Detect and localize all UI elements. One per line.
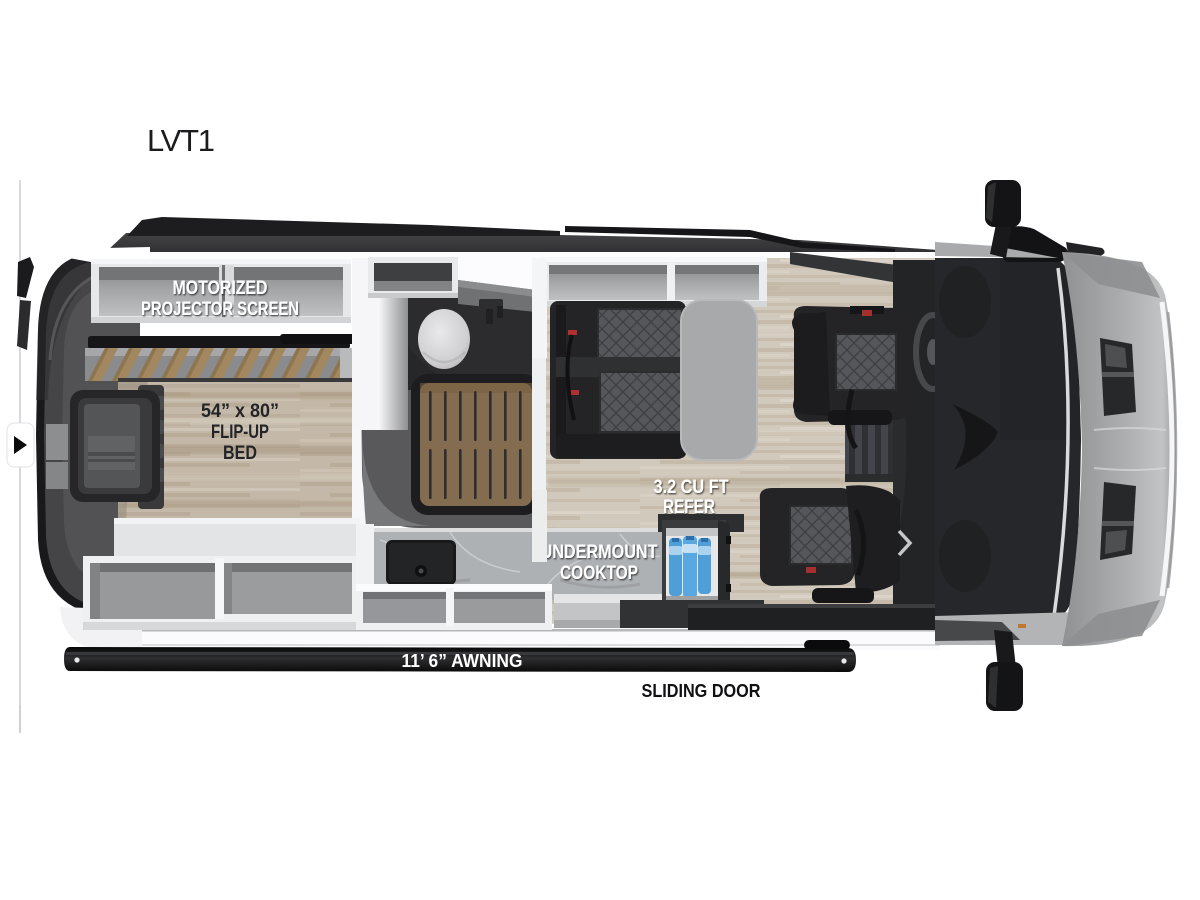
svg-text:LVT1: LVT1: [147, 123, 215, 158]
svg-text:3.2 CU FT: 3.2 CU FT: [654, 477, 729, 498]
svg-text:FLIP-UP: FLIP-UP: [211, 422, 269, 443]
svg-text:PROJECTOR SCREEN: PROJECTOR SCREEN: [141, 299, 299, 320]
svg-text:UNDERMOUNT: UNDERMOUNT: [541, 542, 658, 563]
svg-text:BED: BED: [223, 443, 257, 464]
svg-text:11’ 6” AWNING: 11’ 6” AWNING: [402, 651, 523, 671]
svg-text:MOTORIZED: MOTORIZED: [173, 278, 268, 299]
svg-text:SLIDING DOOR: SLIDING DOOR: [642, 681, 761, 701]
svg-text:54” x 80”: 54” x 80”: [201, 401, 279, 422]
svg-text:COOKTOP: COOKTOP: [560, 563, 638, 584]
